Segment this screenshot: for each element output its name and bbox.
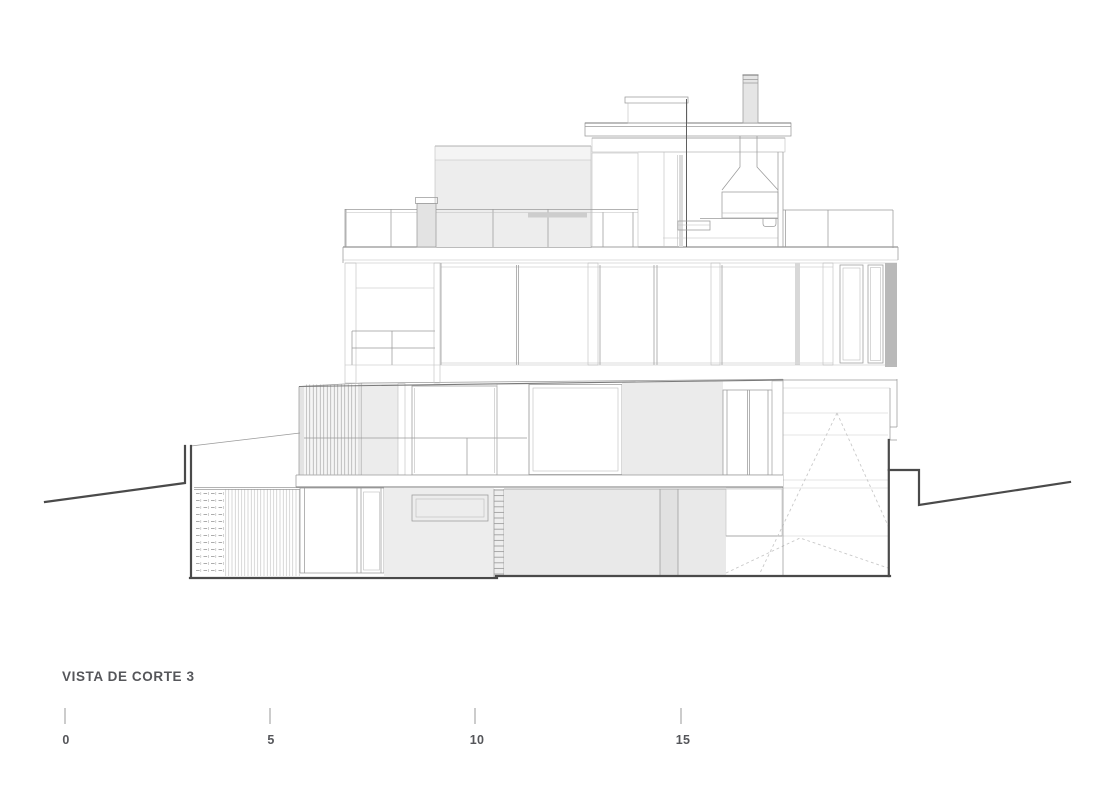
roof-level xyxy=(345,75,893,248)
skylight-box xyxy=(628,103,687,123)
ground-glass-door xyxy=(300,488,384,573)
penthouse-roof-slab xyxy=(585,123,791,136)
skylight-lid xyxy=(625,97,688,103)
penthouse-right-wall xyxy=(778,152,783,247)
section-drawing: VISTA DE CORTE 3 0 5 10 15 xyxy=(0,0,1116,789)
stair-bulkhead-parapet xyxy=(435,146,591,160)
middle-panel-3 xyxy=(622,382,723,476)
scale-tick-marks xyxy=(65,708,681,724)
upper-gray-mullion-2 xyxy=(711,263,720,365)
middle-panel-1 xyxy=(362,384,398,476)
penthouse-fascia xyxy=(592,138,785,152)
middle-window-1-frame xyxy=(415,388,495,473)
upper-framed-window-inner xyxy=(843,268,860,360)
penthouse-glass-mullion xyxy=(679,155,683,247)
roof-vent xyxy=(417,204,436,248)
terrace-floor-edge xyxy=(194,488,300,490)
middle-window-3-mullions xyxy=(727,390,768,475)
middle-slab-band xyxy=(296,475,783,487)
roof-deck-caps xyxy=(343,247,898,263)
upper-cabinet xyxy=(352,331,435,365)
scale-labels: 0 5 10 15 xyxy=(62,733,690,747)
louver-slats xyxy=(306,385,358,475)
terrain-slope-line xyxy=(191,433,300,446)
stair-bulkhead-volume xyxy=(435,146,591,247)
upper-gray-mullion-1 xyxy=(588,263,598,365)
upper-framed-door-inner xyxy=(871,268,881,361)
upper-gray-mullion-4 xyxy=(823,263,833,365)
middle-window-2-frame xyxy=(533,388,618,471)
scale-label-0: 0 xyxy=(62,733,69,747)
upper-framed-window xyxy=(840,265,863,363)
grill-hood xyxy=(722,136,778,190)
louver-left-edge xyxy=(299,386,304,475)
middle-floor xyxy=(296,379,783,487)
roof-railing-right xyxy=(783,210,893,248)
scale-label-5: 5 xyxy=(267,733,274,747)
architectural-drawing-sheet: VISTA DE CORTE 3 0 5 10 15 xyxy=(0,0,1116,789)
penthouse-glass-lines xyxy=(638,152,783,247)
ground-gray-volume xyxy=(504,489,726,575)
terrain-right xyxy=(889,440,1070,505)
roof-vent-cap xyxy=(416,198,438,204)
roof-deck-band xyxy=(343,260,898,263)
penthouse-side-wall xyxy=(592,153,638,247)
building-base-line xyxy=(190,576,890,578)
middle-panel-4 xyxy=(772,381,783,475)
upper-section-cut-wall xyxy=(885,263,897,367)
open-bay-faint-lines xyxy=(726,388,890,536)
middle-panel-2 xyxy=(497,384,529,475)
drawing-title: VISTA DE CORTE 3 xyxy=(62,669,195,684)
middle-window-2 xyxy=(529,385,622,475)
scale-label-15: 15 xyxy=(676,733,691,747)
gravel-hatch xyxy=(225,489,300,576)
upper-glazing-frame-lines xyxy=(441,267,833,363)
roof-counter-bar xyxy=(528,213,587,218)
louver-right-edge xyxy=(358,384,362,476)
grill-grate xyxy=(722,192,778,218)
retaining-wall-drainage-hatch xyxy=(194,489,225,576)
scale-label-10: 10 xyxy=(470,733,485,747)
grill-ember-tray xyxy=(722,213,778,218)
chimney xyxy=(743,75,758,123)
upper-gray-mullion-3 xyxy=(795,263,800,365)
scale-bar: 0 5 10 15 xyxy=(62,708,690,747)
ground-door-narrow-pane xyxy=(364,492,380,570)
terrain-left xyxy=(45,446,185,502)
ground-wall xyxy=(384,488,494,576)
grill-counter-and-sink xyxy=(700,219,778,227)
ground-gray-volume-pier xyxy=(660,489,678,575)
title-block: VISTA DE CORTE 3 xyxy=(62,669,195,684)
upper-glazing-mullions xyxy=(441,263,722,365)
middle-window-1 xyxy=(412,386,497,475)
open-bay-dashed-lines xyxy=(726,413,890,573)
ladder-rungs xyxy=(494,489,504,577)
ground-light-panel xyxy=(726,489,782,536)
middle-mullion-1 xyxy=(398,384,405,476)
